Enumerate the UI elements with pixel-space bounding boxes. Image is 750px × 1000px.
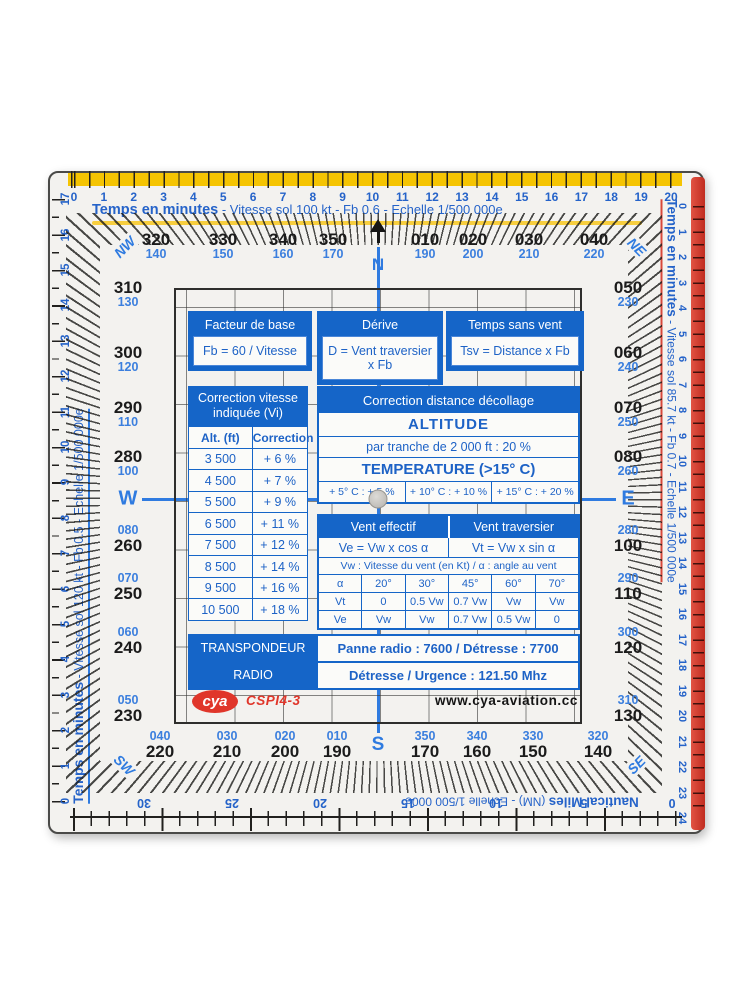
- radio-row-label: TRANSPONDEUR: [190, 636, 316, 661]
- compass-heading-black: 230: [114, 707, 142, 724]
- table-row: 5 500 + 9 %: [189, 492, 307, 514]
- product-photo-page: { "colors":{"accent_blue":"#1565c8","num…: [0, 0, 750, 1000]
- correction-cell: + 12 %: [253, 535, 307, 556]
- ruler-number: 17: [575, 190, 588, 204]
- compass-heading-pair: 140 320: [584, 730, 612, 760]
- compass-heading-blue: 240: [618, 361, 639, 374]
- compass-heading-blue: 100: [118, 465, 139, 478]
- temperature-label: TEMPERATURE (>15° C): [319, 457, 578, 481]
- compass-heading-black: 010: [411, 231, 439, 248]
- ruler-number: 16: [545, 190, 558, 204]
- compass-heading-black: 300: [114, 344, 142, 361]
- table-row: 4 500 + 7 %: [189, 470, 307, 492]
- vent-formulas: Ve = Vw x cos α Vt = Vw x sin α: [319, 538, 578, 557]
- compass-heading-blue: 250: [618, 416, 639, 429]
- altitude-cell: 3 500: [189, 449, 253, 470]
- compass-heading-blue: 210: [519, 248, 540, 261]
- ruler-number: 0: [669, 796, 676, 810]
- compass-heading-black: 150: [519, 743, 547, 760]
- compass-heading-blue: 160: [273, 248, 294, 261]
- compass-heading-blue: 350: [415, 730, 436, 743]
- compass-heading-black: 170: [411, 743, 439, 760]
- vent-cell: α: [319, 575, 362, 592]
- ruler-number: 18: [605, 190, 618, 204]
- compass-heading-blue: 050: [118, 694, 139, 707]
- table-row: 3 500 + 6 %: [189, 449, 307, 471]
- ruler-title-text: Nautical Miles: [549, 795, 639, 810]
- ruler-number: 25: [225, 796, 239, 810]
- ruler-number: 22: [676, 761, 688, 773]
- compass-heading-black: 320: [142, 231, 170, 248]
- cardinal-south-label: S: [372, 734, 385, 756]
- table-row: 6 500 + 11 %: [189, 513, 307, 535]
- compass-heading-pair: 310 130: [114, 279, 142, 309]
- vent-note: Vw : Vitesse du vent (en Kt) / α : angle…: [319, 557, 578, 574]
- box-title: Dérive: [319, 313, 441, 336]
- compass-heading-blue: 260: [618, 465, 639, 478]
- correction-cell: + 11 %: [253, 513, 307, 534]
- radio-row: TRANSPONDEUR Panne radio : 7600 / Détres…: [190, 636, 578, 661]
- compass-heading-blue: 120: [118, 361, 139, 374]
- correction-cell: + 7 %: [253, 470, 307, 491]
- vent-cell: 60°: [492, 575, 535, 592]
- compass-heading-pair: 040 220: [580, 231, 608, 261]
- correction-cell: + 6 %: [253, 449, 307, 470]
- compass-heading-black: 140: [584, 743, 612, 760]
- altitude-cell: 8 500: [189, 556, 253, 577]
- compass-heading-pair: 080 260: [614, 448, 642, 478]
- correction-cell: + 16 %: [253, 578, 307, 599]
- altitude-cell: 6 500: [189, 513, 253, 534]
- ruler-number: 20: [676, 710, 688, 722]
- radio-row-label: RADIO: [190, 663, 316, 688]
- compass-heading-blue: 300: [618, 626, 639, 639]
- ruler-number: 20: [313, 796, 327, 810]
- facteur-de-base-box: Facteur de base Fb = 60 / Vitesse: [188, 311, 312, 371]
- cardinal-east-label: E: [621, 488, 634, 511]
- compass-heading-pair: 150 330: [519, 730, 547, 760]
- compass-heading-black: 200: [271, 743, 299, 760]
- compass-heading-pair: 050 230: [614, 279, 642, 309]
- compass-heading-black: 160: [463, 743, 491, 760]
- compass-heading-pair: 210 030: [213, 730, 241, 760]
- vent-cell: 0: [536, 611, 578, 628]
- compass-heading-black: 100: [614, 537, 642, 554]
- column-header: Alt. (ft): [189, 427, 253, 448]
- radio-row-value: Détresse / Urgence : 121.50 Mhz: [318, 663, 578, 688]
- compass-heading-pair: 060 240: [614, 344, 642, 374]
- compass-heading-black: 210: [213, 743, 241, 760]
- altitude-cell: 10 500: [189, 599, 253, 620]
- compass-heading-black: 310: [114, 279, 142, 296]
- compass-heading-blue: 230: [618, 296, 639, 309]
- compass-heading-pair: 070 250: [614, 399, 642, 429]
- compass-heading-black: 130: [614, 707, 642, 724]
- vent-cell: 0.7 Vw: [449, 611, 492, 628]
- compass-heading-blue: 330: [523, 730, 544, 743]
- compass-heading-blue: 150: [213, 248, 234, 261]
- ruler-number: 30: [137, 796, 151, 810]
- radio-row-value: Panne radio : 7600 / Détresse : 7700: [318, 636, 578, 661]
- compass-heading-black: 340: [269, 231, 297, 248]
- box-formula: Fb = 60 / Vitesse: [193, 336, 307, 366]
- altitude-rule: par tranche de 2 000 ft : 20 %: [319, 436, 578, 457]
- compass-heading-pair: 290 110: [114, 399, 142, 429]
- table-row: 10 500 + 18 %: [189, 599, 307, 620]
- temperature-cells: + 5° C : + 5 %+ 10° C : + 10 %+ 15° C : …: [319, 481, 578, 502]
- compass-heading-black: 260: [114, 537, 142, 554]
- box-title: Temps sans vent: [448, 313, 582, 336]
- temps-sans-vent-box: Temps sans vent Tsv = Distance x Fb: [446, 311, 584, 371]
- derive-box: Dérive D = Vent traversier x Fb: [317, 311, 443, 385]
- bottom-ruler-ticks-major: [70, 808, 682, 831]
- ruler-number: 21: [676, 735, 688, 747]
- compass-heading-black: 190: [323, 743, 351, 760]
- compass-heading-blue: 070: [118, 572, 139, 585]
- compass-heading-pair: 120 300: [614, 626, 642, 656]
- vent-headers: Vent effectif Vent traversier: [319, 516, 578, 538]
- compass-heading-blue: 140: [146, 248, 167, 261]
- compass-heading-pair: 100 280: [614, 524, 642, 554]
- compass-heading-pair: 170 350: [411, 730, 439, 760]
- vent-traversier-header: Vent traversier: [450, 516, 579, 538]
- vent-cell: Ve: [319, 611, 362, 628]
- compass-heading-pair: 250 070: [114, 572, 142, 602]
- temperature-cell: + 5° C : + 5 %: [319, 482, 406, 502]
- vent-angle-row: α20°30°45°60°70°: [319, 574, 578, 592]
- temperature-cell: + 15° C : + 20 %: [492, 482, 578, 502]
- ruler-subtitle-text: - Vitesse sol 85.7 kt - Fb 0.7 - Echelle…: [665, 320, 679, 583]
- ruler-number: 17: [60, 193, 72, 206]
- table-row: 8 500 + 14 %: [189, 556, 307, 578]
- compass-heading-pair: 300 120: [114, 344, 142, 374]
- left-ruler-ticks-major: [52, 193, 65, 809]
- compass-heading-black: 290: [114, 399, 142, 416]
- compass-heading-blue: 320: [588, 730, 609, 743]
- vent-cell: 70°: [536, 575, 578, 592]
- ruler-number: 16: [676, 608, 688, 620]
- vent-cell: 0.5 Vw: [406, 593, 449, 610]
- flight-plotter: 01234567891011121314151617181920 Temps e…: [48, 171, 704, 834]
- model-number: CSPI4-3: [246, 693, 301, 708]
- altitude-label: ALTITUDE: [319, 412, 578, 436]
- vent-cell: Vw: [406, 611, 449, 628]
- vent-cell: Vw: [536, 593, 578, 610]
- ruler-subtitle-text: (NM) - Echelle 1/500 000e: [405, 795, 545, 809]
- ruler-number: 17: [676, 633, 688, 645]
- branding-row: cya CSPI4-3 www.cya-aviation.cc: [188, 689, 580, 715]
- compass-heading-black: 250: [114, 585, 142, 602]
- vent-cell: 0: [362, 593, 405, 610]
- compass-heading-black: 110: [614, 585, 641, 602]
- compass-heading-pair: 110 290: [614, 572, 641, 602]
- table-header-row: Alt. (ft) Correction: [189, 427, 307, 449]
- compass-heading-pair: 010 190: [411, 231, 439, 261]
- vent-cell: Vw: [362, 611, 405, 628]
- correction-cell: + 14 %: [253, 556, 307, 577]
- ruler-number: 15: [515, 190, 528, 204]
- compass-heading-black: 350: [319, 231, 347, 248]
- box-formula: Tsv = Distance x Fb: [451, 336, 579, 366]
- compass-heading-black: 070: [614, 399, 642, 416]
- right-ruler-title: Temps en minutes - Vitesse sol 85.7 kt -…: [661, 199, 680, 582]
- compass-heading-black: 020: [459, 231, 487, 248]
- compass-heading-black: 330: [209, 231, 237, 248]
- bottom-ruler-title: Nautical Miles (NM) - Echelle 1/500 000e: [405, 795, 638, 810]
- website-url: www.cya-aviation.cc: [435, 693, 578, 708]
- compass-heading-blue: 060: [118, 626, 139, 639]
- compass-heading-blue: 130: [118, 296, 139, 309]
- compass-heading-pair: 130 310: [614, 694, 642, 724]
- altitude-cell: 4 500: [189, 470, 253, 491]
- table-body: 3 500 + 6 % 4 500 + 7 % 5 500 + 9 % 6 50…: [189, 449, 307, 620]
- table-grid: Alt. (ft) Correction 3 500 + 6 % 4 500 +…: [188, 426, 308, 621]
- compass-heading-pair: 340 160: [269, 231, 297, 261]
- compass-heading-blue: 040: [150, 730, 171, 743]
- correction-cell: + 18 %: [253, 599, 307, 620]
- compass-heading-blue: 030: [217, 730, 238, 743]
- compass-heading-pair: 330 150: [209, 231, 237, 261]
- table-row: 9 500 + 16 %: [189, 578, 307, 600]
- vent-ve-row: VeVwVw0.7 Vw0.5 Vw0: [319, 610, 578, 628]
- column-header: Correction: [253, 427, 307, 448]
- compass-heading-pair: 030 210: [515, 231, 543, 261]
- compass-heading-blue: 020: [275, 730, 296, 743]
- vent-table: Vent effectif Vent traversier Ve = Vw x …: [317, 514, 580, 630]
- top-ruler-ticks: [68, 171, 682, 188]
- vent-effectif-formula: Ve = Vw x cos α: [319, 538, 449, 557]
- correction-vitesse-table: Correction vitesse indiquée (Vi) Alt. (f…: [188, 386, 308, 621]
- compass-heading-blue: 190: [415, 248, 436, 261]
- vent-cell: 0.5 Vw: [492, 611, 535, 628]
- table-row: 7 500 + 12 %: [189, 535, 307, 557]
- altitude-cell: 9 500: [189, 578, 253, 599]
- table-title: Correction vitesse indiquée (Vi): [188, 386, 308, 426]
- compass-heading-black: 240: [114, 639, 142, 656]
- compass-heading-black: 030: [515, 231, 543, 248]
- compass-heading-blue: 340: [467, 730, 488, 743]
- compass-heading-pair: 020 200: [459, 231, 487, 261]
- compass-heading-pair: 320 140: [142, 231, 170, 261]
- ruler-title-text: Temps en minutes: [665, 199, 680, 317]
- ruler-number: 23: [676, 786, 688, 798]
- compass-heading-pair: 350 170: [319, 231, 347, 261]
- vent-effectif-header: Vent effectif: [319, 516, 450, 538]
- compass-heading-black: 080: [614, 448, 642, 465]
- correction-distance-box: Correction distance décollage ALTITUDE p…: [317, 386, 580, 504]
- compass-heading-pair: 200 020: [271, 730, 299, 760]
- correction-cell: + 9 %: [253, 492, 307, 513]
- compass-heading-blue: 290: [618, 572, 639, 585]
- vent-cell: 45°: [449, 575, 492, 592]
- compass-heading-blue: 220: [584, 248, 605, 261]
- box-formula: D = Vent traversier x Fb: [322, 336, 438, 380]
- table-title: Correction distance décollage: [319, 388, 578, 412]
- compass-heading-blue: 200: [463, 248, 484, 261]
- compass-heading-black: 120: [614, 639, 642, 656]
- compass-heading-blue: 110: [118, 416, 138, 429]
- north-arrow-stem: [377, 231, 380, 243]
- bottom-ruler-line: [70, 816, 682, 818]
- compass-heading-pair: 160 340: [463, 730, 491, 760]
- right-ruler-ticks: [693, 199, 704, 811]
- compass-heading-pair: 240 060: [114, 626, 142, 656]
- cardinal-west-label: W: [119, 488, 138, 511]
- vent-cell: Vt: [319, 593, 362, 610]
- ruler-number: 18: [676, 659, 688, 671]
- compass-heading-blue: 080: [118, 524, 139, 537]
- compass-heading-pair: 220 040: [146, 730, 174, 760]
- vent-cell: Vw: [492, 593, 535, 610]
- compass-heading-blue: 010: [327, 730, 348, 743]
- compass-heading-pair: 230 050: [114, 694, 142, 724]
- vent-cell: 30°: [406, 575, 449, 592]
- box-title: Facteur de base: [190, 313, 310, 336]
- radio-row: RADIO Détresse / Urgence : 121.50 Mhz: [190, 663, 578, 688]
- compass-heading-black: 060: [614, 344, 642, 361]
- compass-heading-black: 220: [146, 743, 174, 760]
- cardinal-north-label: N: [372, 255, 384, 275]
- temperature-cell: + 10° C : + 10 %: [406, 482, 493, 502]
- altitude-cell: 7 500: [189, 535, 253, 556]
- radio-table: TRANSPONDEUR Panne radio : 7600 / Détres…: [188, 634, 580, 690]
- cya-logo: cya: [192, 690, 238, 713]
- compass-heading-blue: 280: [618, 524, 639, 537]
- compass-heading-black: 040: [580, 231, 608, 248]
- ruler-number: 15: [676, 582, 688, 594]
- compass-heading-pair: 260 080: [114, 524, 142, 554]
- ruler-number: 19: [676, 684, 688, 696]
- compass-heading-pair: 280 100: [114, 448, 142, 478]
- ruler-number: 19: [634, 190, 647, 204]
- vent-traversier-formula: Vt = Vw x sin α: [449, 538, 578, 557]
- compass-heading-pair: 190 010: [323, 730, 351, 760]
- compass-heading-blue: 170: [323, 248, 344, 261]
- compass-heading-blue: 310: [618, 694, 639, 707]
- center-pivot-hole: [369, 490, 388, 509]
- vent-cell: 0.7 Vw: [449, 593, 492, 610]
- compass-heading-black: 280: [114, 448, 142, 465]
- vent-vt-row: Vt00.5 Vw0.7 VwVwVw: [319, 592, 578, 610]
- compass-heading-black: 050: [614, 279, 642, 296]
- vent-cell: 20°: [362, 575, 405, 592]
- altitude-cell: 5 500: [189, 492, 253, 513]
